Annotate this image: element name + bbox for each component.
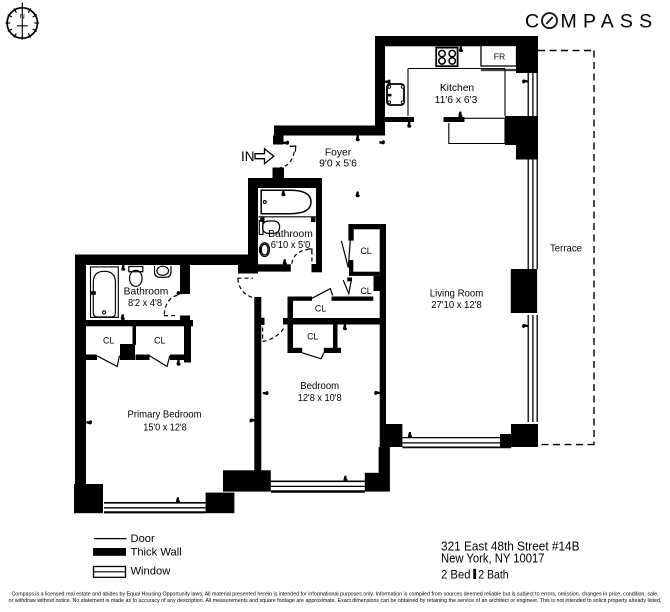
svg-text:9'0 x 5'6: 9'0 x 5'6	[319, 159, 357, 170]
svg-text:Living Room: Living Room	[430, 289, 484, 300]
svg-text:2 Bath: 2 Bath	[478, 567, 509, 581]
svg-text:Bedroom: Bedroom	[300, 381, 339, 392]
svg-text:2 Bed: 2 Bed	[441, 567, 471, 581]
svg-text:FR: FR	[494, 52, 505, 62]
svg-text:IN: IN	[241, 149, 255, 164]
svg-text:Foyer: Foyer	[325, 148, 352, 159]
svg-text:8'2 x 4'8: 8'2 x 4'8	[128, 298, 162, 309]
svg-text:CL: CL	[103, 336, 114, 346]
svg-text:6'10 x 5'0: 6'10 x 5'0	[271, 240, 311, 251]
svg-text:Bathroom: Bathroom	[124, 287, 169, 298]
svg-text:12'8 x 10'8: 12'8 x 10'8	[298, 393, 342, 404]
svg-text:N: N	[20, 13, 25, 20]
svg-text:CL: CL	[360, 286, 371, 296]
svg-text:Kitchen: Kitchen	[440, 83, 475, 94]
svg-text:Door: Door	[131, 533, 156, 545]
svg-text:Compass is a licensed real est: Compass is a licensed real estate and ab…	[11, 592, 658, 598]
svg-text:11'6 x 6'3: 11'6 x 6'3	[435, 95, 478, 106]
svg-text:Terrace: Terrace	[550, 244, 582, 255]
svg-text:Window: Window	[131, 566, 172, 578]
svg-text:MPASS: MPASS	[561, 11, 659, 33]
svg-text:CL: CL	[154, 336, 165, 346]
svg-text:15'0 x 12'8: 15'0 x 12'8	[143, 423, 187, 434]
svg-text:Bathroom: Bathroom	[268, 229, 313, 240]
svg-text:CL: CL	[307, 332, 318, 342]
svg-text:or withdraw without notice. No: or withdraw without notice. No statement…	[9, 598, 662, 604]
svg-text:Thick Wall: Thick Wall	[131, 546, 182, 558]
svg-text:Primary Bedroom: Primary Bedroom	[128, 410, 202, 421]
svg-text:CL: CL	[360, 246, 371, 256]
svg-text:New York, NY 10017: New York, NY 10017	[441, 551, 545, 566]
svg-text:27'10 x 12'8: 27'10 x 12'8	[431, 300, 482, 311]
svg-text:CL: CL	[315, 304, 326, 314]
